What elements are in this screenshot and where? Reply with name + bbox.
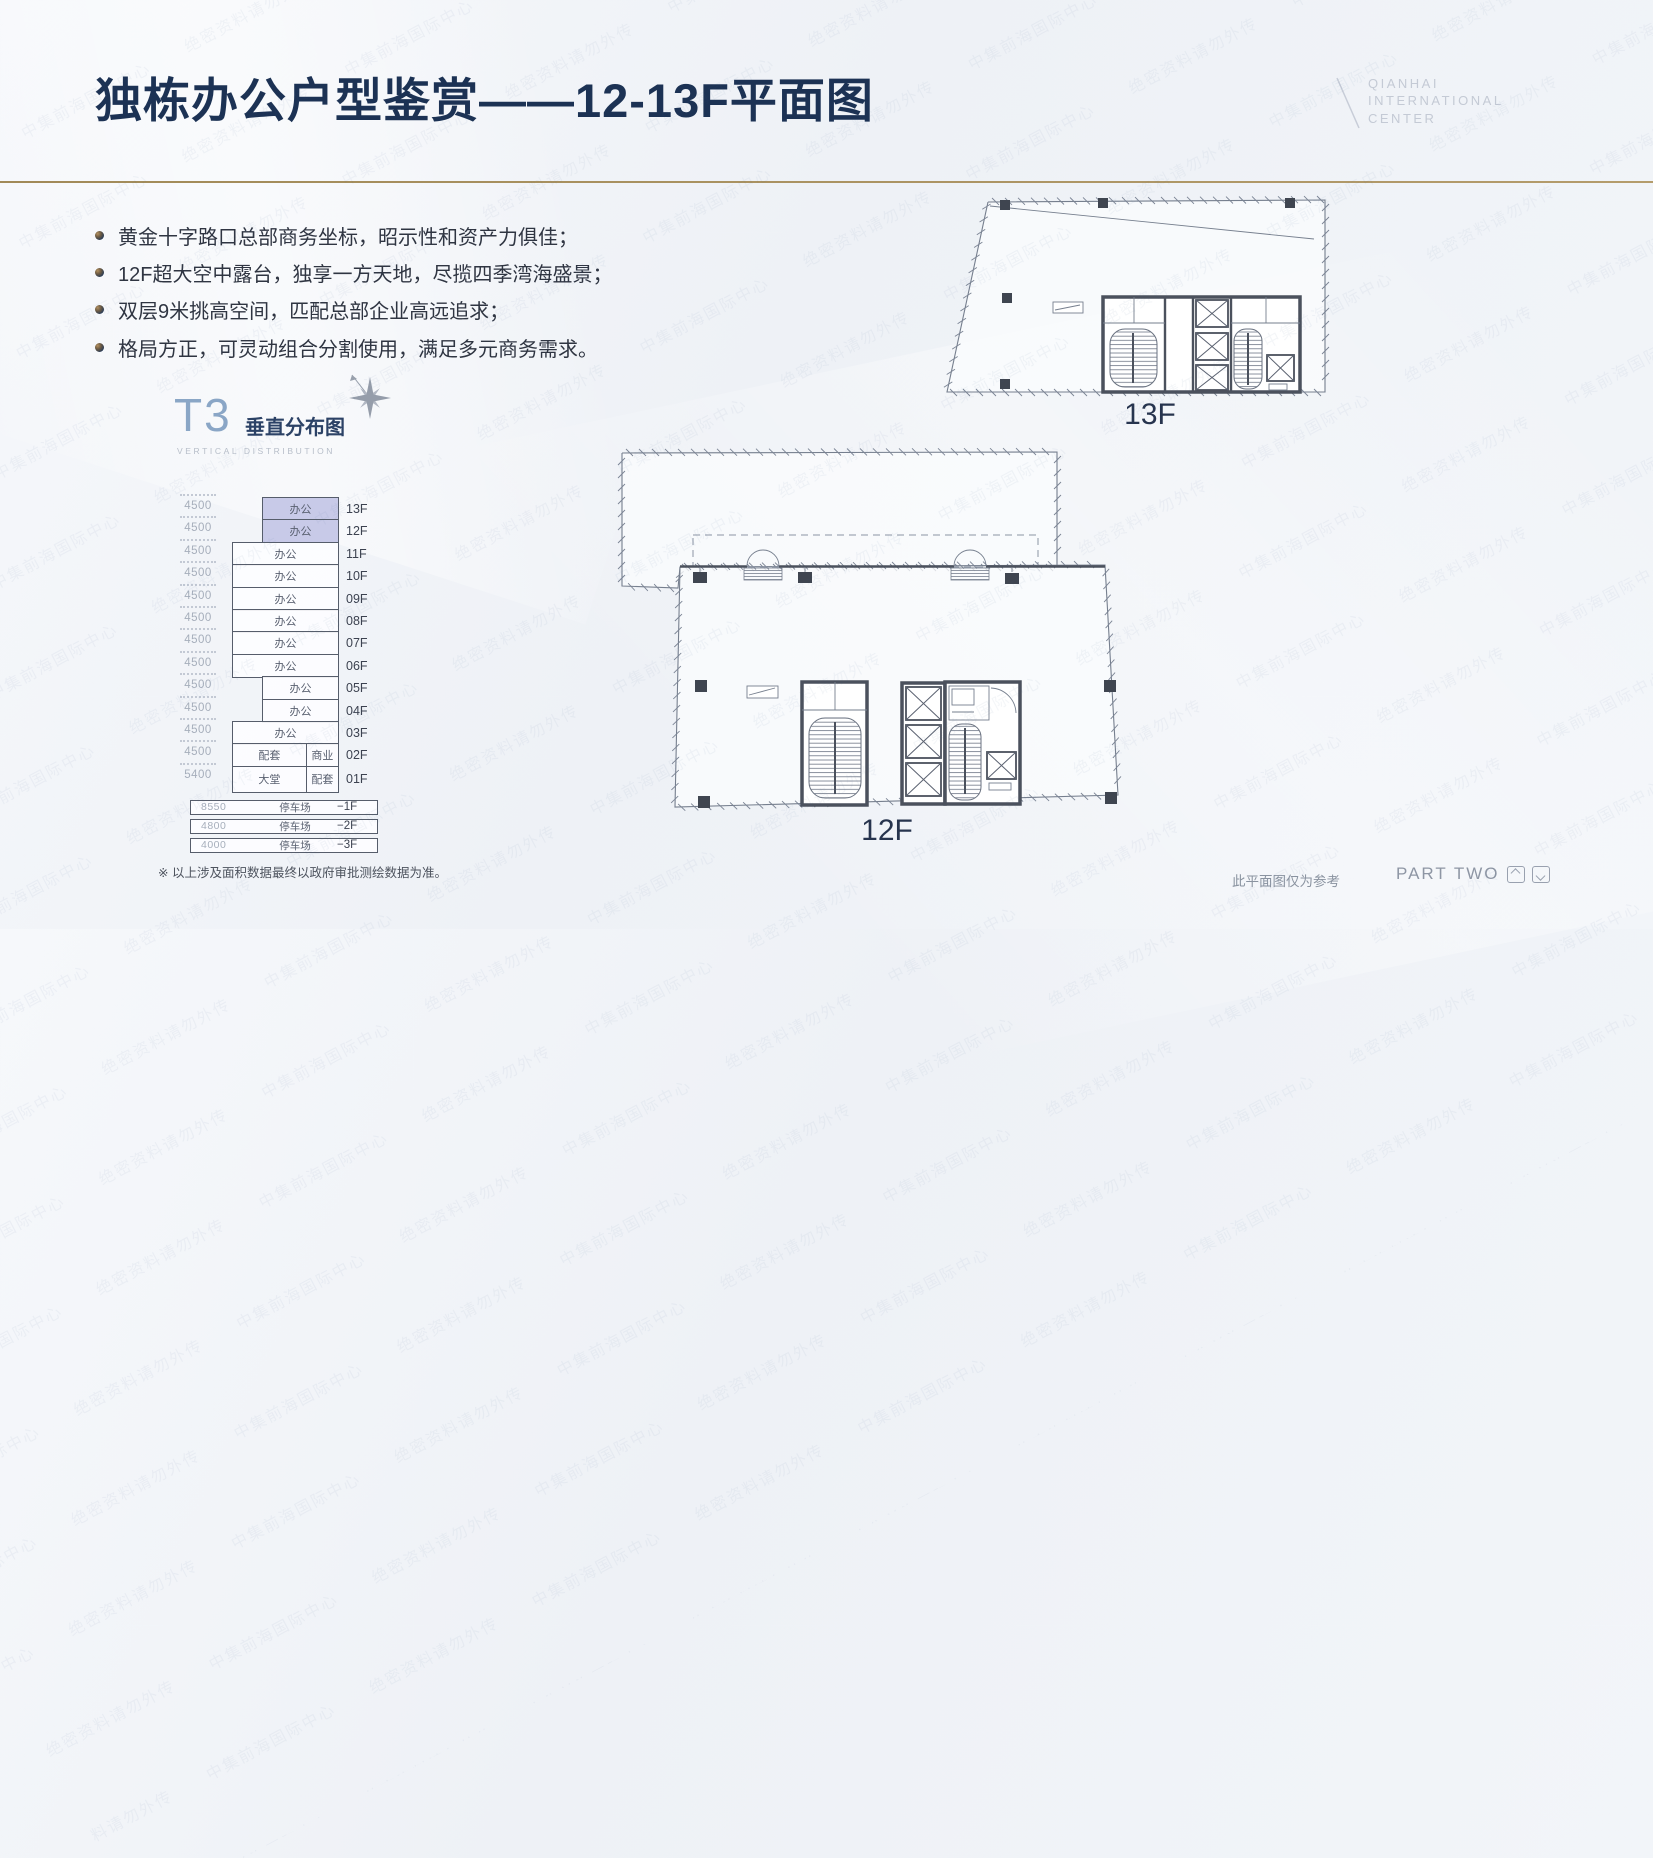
floor-height-cell: 4500 (170, 539, 226, 563)
bullet-text: 双层9米挑高空间，匹配总部企业高远追求； (118, 295, 509, 324)
plan-label-13f: 13F (1095, 398, 1205, 432)
floor-height-cell: 4500 (170, 696, 226, 720)
dotted-separator (180, 740, 216, 742)
bullet-marker (95, 343, 104, 352)
floor-box: 大堂配套 (232, 766, 339, 793)
dotted-separator (180, 651, 216, 653)
basement-box: 8550停车场−1F (190, 800, 378, 815)
bullet-item: 格局方正，可灵动组合分割使用，满足多元商务需求。 (95, 333, 598, 361)
brand-line: QIANHAI (1368, 75, 1504, 93)
basement-height-value: 8550 (191, 801, 253, 813)
bullet-item: 双层9米挑高空间，匹配总部企业高远追求； (95, 295, 509, 323)
floor-box: 办公 (232, 609, 339, 633)
bullet-marker (95, 305, 104, 314)
basement-label: 停车场 (253, 800, 337, 815)
gold-divider-line (0, 181, 1653, 183)
distribution-title: 垂直分布图 (245, 411, 345, 440)
core-13f (1103, 297, 1300, 392)
floor-height-value: 4500 (184, 657, 212, 669)
basement-box: 4000停车场−3F (190, 838, 378, 853)
plan-disclaimer: 此平面图仅为参考 (1232, 870, 1340, 890)
floor-label: 12F (346, 519, 368, 543)
basement-floor-label: −3F (337, 839, 377, 851)
chevron-down-icon (1536, 870, 1546, 880)
bullet-text: 格局方正，可灵动组合分割使用，满足多元商务需求。 (118, 333, 598, 362)
floor-box-cell: 配套 (306, 767, 338, 792)
dotted-separator (180, 628, 216, 630)
dotted-separator (180, 561, 216, 563)
page-title: 独栋办公户型鉴赏——12-13F平面图 (95, 62, 874, 131)
brand-slash-icon (1328, 70, 1368, 132)
floor-height-cell: 4500 (170, 494, 226, 518)
floor-height-cell: 5400 (170, 763, 226, 790)
floor-outline-12f (675, 565, 1118, 807)
dotted-separator (180, 763, 216, 765)
floor-label: 05F (346, 676, 368, 700)
floor-height-value: 4500 (184, 567, 212, 579)
floor-label: 06F (346, 654, 368, 678)
floor-label: 09F (346, 587, 368, 611)
distribution-title-en: VERTICAL DISTRIBUTION (177, 446, 335, 456)
basement-box: 4800停车场−2F (190, 819, 378, 834)
floor-height-cell: 4500 (170, 628, 226, 652)
elevator-icon (1196, 300, 1228, 390)
floor-box-cell: 配套 (233, 744, 306, 766)
floor-box: 办公 (262, 699, 339, 723)
floor-height-value: 4500 (184, 612, 212, 624)
floor-box: 办公 (232, 542, 339, 566)
floor-label: 02F (346, 743, 368, 767)
basement-label: 停车场 (253, 819, 337, 834)
floor-label: 04F (346, 699, 368, 723)
floor-height-cell: 4500 (170, 651, 226, 675)
floor-plan-12f (585, 422, 1140, 822)
floor-label: 03F (346, 721, 368, 745)
tower-name: T3 (174, 388, 232, 442)
elevator-icon (1267, 355, 1294, 381)
basement-floor-label: −1F (337, 801, 377, 813)
floor-label: 08F (346, 609, 368, 633)
dotted-separator (180, 494, 216, 496)
floor-height-cell: 4500 (170, 740, 226, 764)
vertical-distribution-diagram: 4500办公13F4500办公12F4500办公11F4500办公10F4500… (170, 460, 415, 870)
floor-height-cell: 4500 (170, 718, 226, 742)
bullet-marker (95, 268, 104, 277)
floor-height-value: 5400 (184, 769, 212, 781)
basement-label: 停车场 (253, 838, 337, 853)
floor-label: 10F (346, 564, 368, 588)
elevator-bank (902, 683, 945, 804)
floor-height-value: 4500 (184, 679, 212, 691)
floor-label: 13F (346, 497, 368, 521)
floor-box: 办公 (262, 676, 339, 700)
bullet-text: 12F超大空中露台，独享一方天地，尽揽四季湾海盛景； (118, 258, 612, 287)
floor-height-value: 4500 (184, 545, 212, 557)
floor-label: 01F (346, 766, 368, 793)
floor-label: 07F (346, 631, 368, 655)
dotted-separator (180, 673, 216, 675)
floor-height-cell: 4500 (170, 584, 226, 608)
brand-line: INTERNATIONAL (1368, 92, 1504, 110)
planter-icon (747, 686, 778, 698)
collapse-button[interactable] (1507, 866, 1525, 883)
floor-box: 配套商业 (232, 743, 339, 767)
floor-box: 办公 (232, 721, 339, 745)
floor-height-value: 4500 (184, 590, 212, 602)
chevron-up-icon (1511, 868, 1521, 878)
floor-height-cell: 4500 (170, 606, 226, 630)
plan-label-12f: 12F (832, 814, 942, 848)
dotted-separator (180, 718, 216, 720)
part-indicator: PART TWO (1396, 864, 1550, 884)
dotted-separator (180, 696, 216, 698)
part-label: PART TWO (1396, 864, 1500, 884)
bullet-item: 12F超大空中露台，独享一方天地，尽揽四季湾海盛景； (95, 258, 612, 286)
brand-logo: QIANHAI INTERNATIONAL CENTER (1328, 70, 1504, 132)
bullet-text: 黄金十字路口总部商务坐标，昭示性和资产力俱佳； (118, 221, 578, 250)
dotted-separator (180, 606, 216, 608)
dotted-separator (180, 584, 216, 586)
floor-box: 办公 (232, 631, 339, 655)
core-right (945, 682, 1020, 804)
compass-icon (344, 372, 396, 424)
floor-box: 办公 (232, 654, 339, 678)
floor-height-cell: 4500 (170, 516, 226, 540)
floor-height-value: 4500 (184, 500, 212, 512)
floor-height-value: 4500 (184, 702, 212, 714)
floor-box-cell: 大堂 (233, 767, 306, 792)
basement-height-value: 4800 (191, 820, 253, 832)
floor-height-cell: 4500 (170, 561, 226, 585)
expand-button[interactable] (1532, 866, 1550, 883)
floor-box: 办公 (262, 497, 339, 521)
floor-height-value: 4500 (184, 522, 212, 534)
basement-height-value: 4000 (191, 839, 253, 851)
floor-box-cell: 商业 (306, 744, 338, 766)
core-left (802, 682, 867, 805)
elevator-icon (987, 752, 1016, 779)
floor-height-cell: 4500 (170, 673, 226, 697)
brand-line: CENTER (1368, 110, 1504, 128)
floor-height-value: 4500 (184, 634, 212, 646)
floor-box: 办公 (232, 587, 339, 611)
bullet-item: 黄金十字路口总部商务坐标，昭示性和资产力俱佳； (95, 221, 578, 249)
floor-label: 11F (346, 542, 367, 566)
basement-floor-label: −2F (337, 820, 377, 832)
dotted-separator (180, 516, 216, 518)
floor-box: 办公 (262, 519, 339, 543)
footnote: ※ 以上涉及面积数据最终以政府审批测绘数据为准。 (158, 862, 447, 881)
bullet-marker (95, 231, 104, 240)
floor-height-value: 4500 (184, 746, 212, 758)
dotted-separator (180, 539, 216, 541)
floor-height-value: 4500 (184, 724, 212, 736)
floor-box: 办公 (232, 564, 339, 588)
